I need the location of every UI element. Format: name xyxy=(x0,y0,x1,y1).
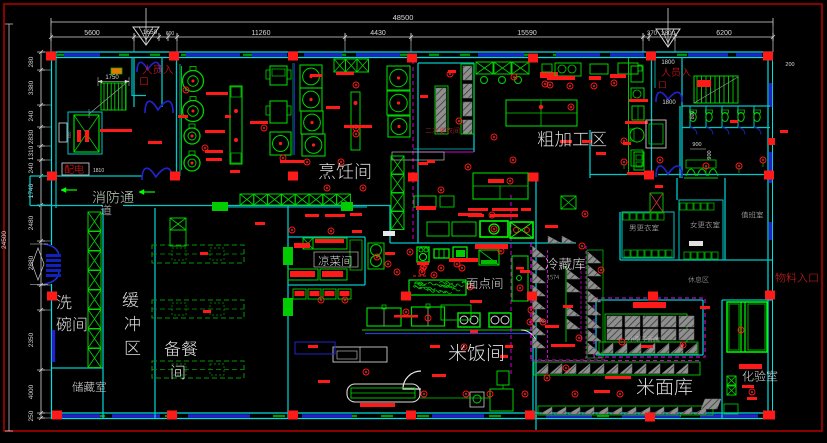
svg-text:250: 250 xyxy=(28,410,35,421)
svg-text:2880: 2880 xyxy=(28,255,35,270)
svg-text:240: 240 xyxy=(28,110,35,121)
svg-text:1310: 1310 xyxy=(28,145,35,160)
svg-text:1800: 1800 xyxy=(661,60,675,66)
svg-text:370: 370 xyxy=(647,31,658,37)
svg-text:4430: 4430 xyxy=(370,30,386,37)
svg-text:1750: 1750 xyxy=(105,75,119,81)
svg-text:24500: 24500 xyxy=(1,231,8,249)
svg-text:5600: 5600 xyxy=(84,30,100,37)
svg-text:800: 800 xyxy=(690,111,696,120)
svg-text:11260: 11260 xyxy=(252,30,271,37)
svg-text:1810: 1810 xyxy=(93,168,104,174)
svg-text:15590: 15590 xyxy=(517,30,537,37)
svg-text:2830: 2830 xyxy=(28,129,35,144)
svg-text:6200: 6200 xyxy=(716,30,732,37)
svg-text:900: 900 xyxy=(707,150,713,159)
svg-text:550: 550 xyxy=(67,131,72,138)
svg-text:200: 200 xyxy=(785,62,794,68)
svg-text:1800: 1800 xyxy=(662,100,676,106)
svg-text:2480: 2480 xyxy=(28,215,35,230)
svg-text:280: 280 xyxy=(28,56,35,67)
svg-text:4000: 4000 xyxy=(28,384,35,399)
svg-text:240: 240 xyxy=(28,162,35,173)
svg-text:2350: 2350 xyxy=(28,332,35,347)
svg-text:1740: 1740 xyxy=(28,183,35,198)
svg-text:3380: 3380 xyxy=(28,80,35,95)
svg-text:48500: 48500 xyxy=(393,13,414,22)
svg-text:600: 600 xyxy=(166,31,175,37)
svg-text:900: 900 xyxy=(692,142,701,148)
